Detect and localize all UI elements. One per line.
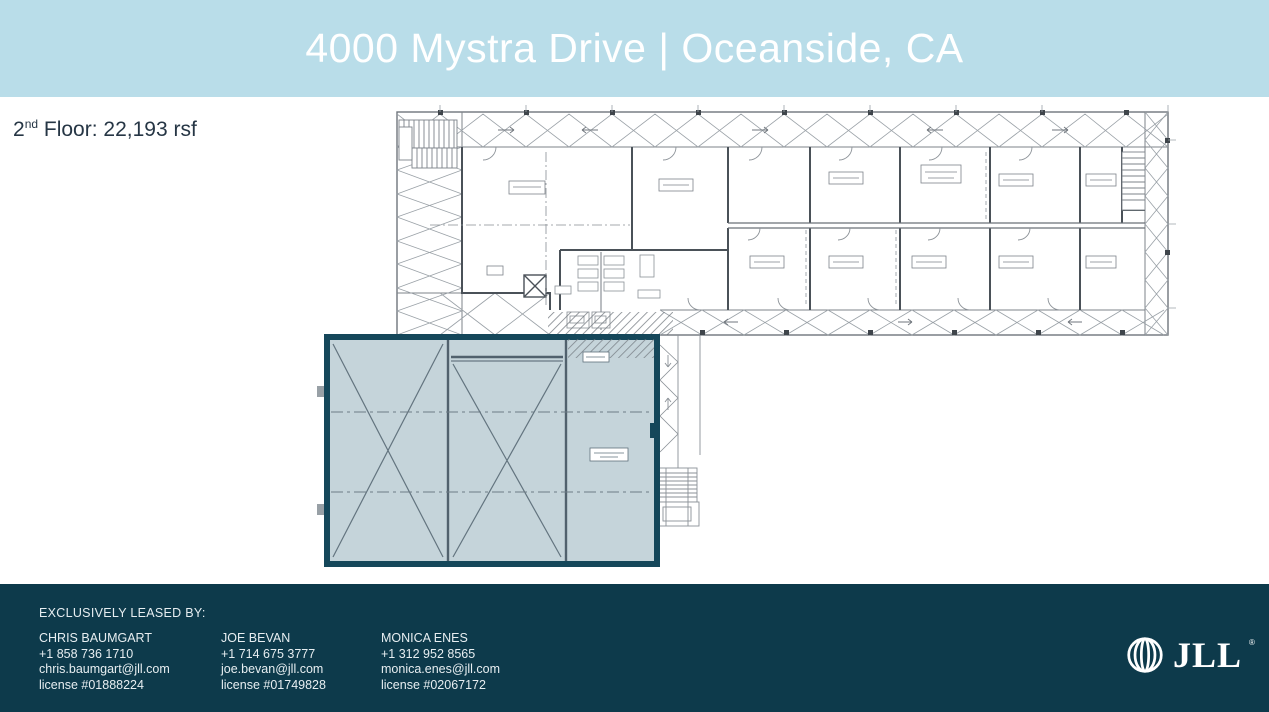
south-exterior-stair-icon [655, 468, 699, 526]
contact-chris-baumgart: CHRIS BAUMGART +1 858 736 1710 chris.bau… [39, 631, 170, 693]
contact-email: chris.baumgart@jll.com [39, 662, 170, 678]
flyer-slide: 4000 Mystra Drive | Oceanside, CA 2nd Fl… [0, 0, 1269, 712]
contact-email: joe.bevan@jll.com [221, 662, 326, 678]
contact-email: monica.enes@jll.com [381, 662, 500, 678]
hatched-area [548, 312, 673, 335]
contact-license: license #01749828 [221, 678, 326, 694]
jll-logo-text: JLL [1173, 634, 1242, 676]
leased-by-heading: EXCLUSIVELY LEASED BY: [39, 606, 206, 620]
footer-band: EXCLUSIVELY LEASED BY: CHRIS BAUMGART +1… [0, 584, 1269, 712]
main-building [397, 105, 1176, 335]
contact-name: JOE BEVAN [221, 631, 326, 647]
contact-joe-bevan: JOE BEVAN +1 714 675 3777 joe.bevan@jll.… [221, 631, 326, 693]
jll-logo: JLL ® [1124, 634, 1255, 676]
contact-name: CHRIS BAUMGART [39, 631, 170, 647]
contact-phone: +1 858 736 1710 [39, 647, 170, 663]
contact-license: license #02067172 [381, 678, 500, 694]
contact-phone: +1 312 952 8565 [381, 647, 500, 663]
contact-phone: +1 714 675 3777 [221, 647, 326, 663]
jll-logo-mark-icon [1124, 634, 1166, 676]
contact-monica-enes: MONICA ENES +1 312 952 8565 monica.enes@… [381, 631, 500, 693]
highlighted-suite [317, 337, 660, 564]
right-interior-stair-icon [1122, 152, 1145, 210]
contact-license: license #01888224 [39, 678, 170, 694]
contact-name: MONICA ENES [381, 631, 500, 647]
registered-trademark-icon: ® [1249, 638, 1255, 648]
elevator-icon [524, 275, 546, 297]
south-walkway [655, 335, 700, 526]
